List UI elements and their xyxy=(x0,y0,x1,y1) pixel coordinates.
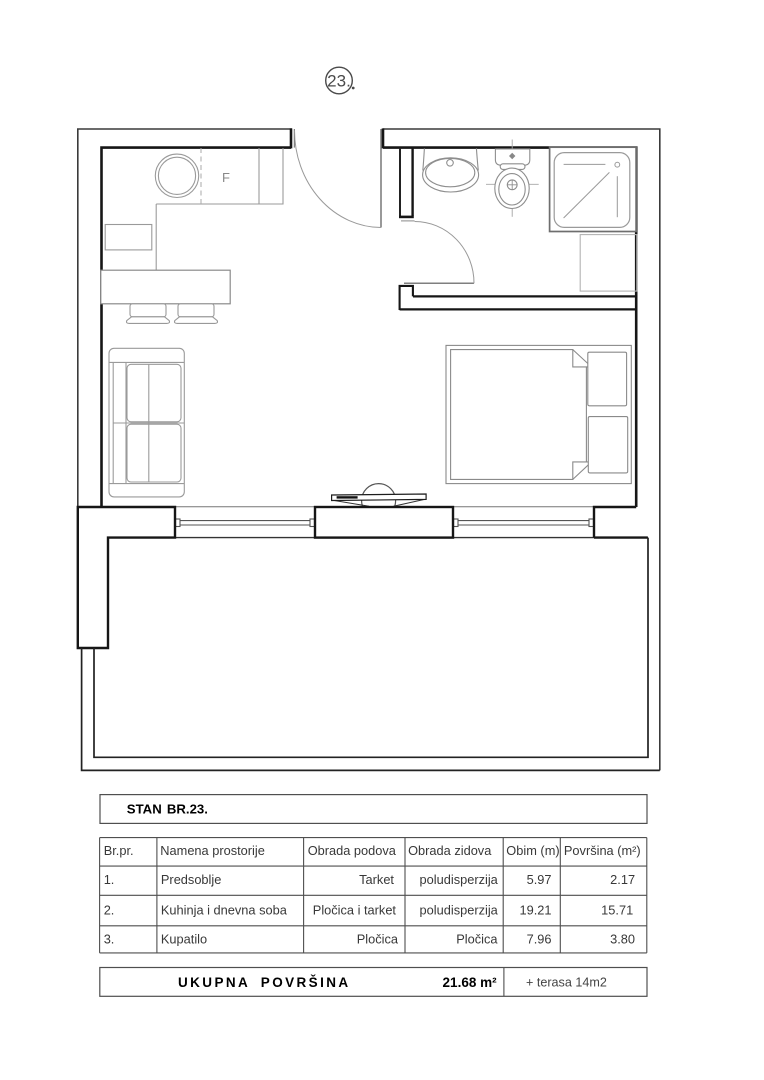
svg-text:Obim (m): Obim (m) xyxy=(506,843,559,858)
svg-text:3.: 3. xyxy=(104,931,115,946)
svg-text:21.68 m²: 21.68 m² xyxy=(443,975,498,990)
svg-text:poludisperzija: poludisperzija xyxy=(420,902,499,917)
svg-text:15.71: 15.71 xyxy=(601,902,633,917)
svg-text:2.: 2. xyxy=(104,902,115,917)
svg-text:Tarket: Tarket xyxy=(359,872,394,887)
svg-text:Obrada podova: Obrada podova xyxy=(308,843,397,858)
svg-text:Obrada zidova: Obrada zidova xyxy=(408,843,492,858)
svg-text:Kupatilo: Kupatilo xyxy=(161,931,207,946)
svg-text:1.: 1. xyxy=(104,872,115,887)
svg-text:Kuhinja i dnevna soba: Kuhinja i dnevna soba xyxy=(161,902,288,917)
svg-text:7.96: 7.96 xyxy=(527,931,552,946)
svg-text:2.17: 2.17 xyxy=(610,872,635,887)
svg-text:Pločica: Pločica xyxy=(357,931,399,946)
svg-text:Predsoblje: Predsoblje xyxy=(161,872,221,887)
svg-text:F: F xyxy=(222,170,230,185)
svg-text:Pločica: Pločica xyxy=(456,931,498,946)
svg-text:UKUPNA POVRŠINA: UKUPNA POVRŠINA xyxy=(178,975,351,990)
svg-text:19.21: 19.21 xyxy=(519,902,551,917)
svg-text:3.80: 3.80 xyxy=(610,931,635,946)
svg-text:5.97: 5.97 xyxy=(527,872,552,887)
svg-text:Br.pr.: Br.pr. xyxy=(104,843,134,858)
svg-text:23.: 23. xyxy=(327,72,351,91)
svg-text:Površina (m²): Površina (m²) xyxy=(564,843,641,858)
svg-text:STAN BR.23.: STAN BR.23. xyxy=(127,801,208,816)
svg-text:+ terasa 14m2: + terasa 14m2 xyxy=(526,976,607,990)
svg-text:Namena prostorije: Namena prostorije xyxy=(160,843,265,858)
svg-text:poludisperzija: poludisperzija xyxy=(420,872,499,887)
svg-text:Pločica i tarket: Pločica i tarket xyxy=(313,902,397,917)
